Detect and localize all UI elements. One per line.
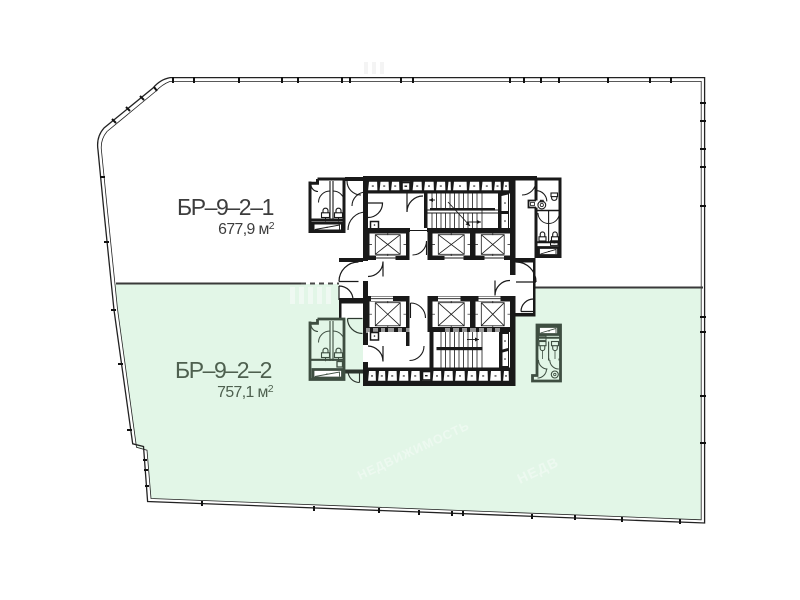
svg-text:БР–9–2–2: БР–9–2–2 xyxy=(175,357,272,383)
svg-text:БР–9–2–1: БР–9–2–1 xyxy=(177,194,274,220)
svg-text:677,9 м2: 677,9 м2 xyxy=(218,220,275,238)
svg-text:757,1 м2: 757,1 м2 xyxy=(217,383,274,401)
